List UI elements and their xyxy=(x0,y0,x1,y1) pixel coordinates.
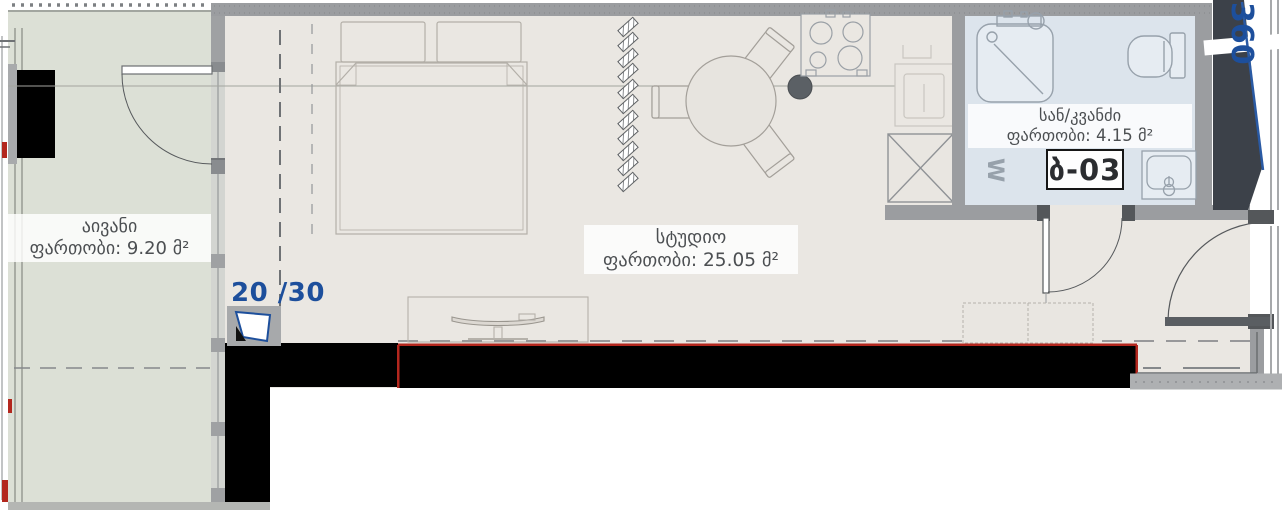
kitchen-sink xyxy=(895,64,953,126)
studio-area: ფართობი: 25.05 მ² xyxy=(584,250,798,273)
bathroom-label: სან/კვანძი ფართობი: 4.15 მ² xyxy=(968,104,1192,148)
duct-shaft xyxy=(888,134,953,202)
pillow xyxy=(437,22,521,62)
window-symbol xyxy=(227,306,281,346)
bathroom-name: სან/კვანძი xyxy=(968,106,1192,126)
unit-number-badge[interactable]: ბ-03 xyxy=(1046,149,1124,190)
axis-number-label: 360 xyxy=(1224,2,1259,65)
balcony-area: ფართობი: 9.20 მ² xyxy=(8,238,211,260)
balcony-bottom-band xyxy=(8,502,270,510)
washing-machine-symbol: W xyxy=(982,158,1007,182)
column xyxy=(788,75,812,99)
balcony-name: აივანი xyxy=(8,216,211,238)
left-wall-column xyxy=(17,70,55,158)
studio-name: სტუდიო xyxy=(584,227,798,250)
floor-plan: W xyxy=(0,0,1282,510)
top-wall xyxy=(211,3,1212,16)
pillow xyxy=(341,22,425,62)
bathroom-area: ფართობი: 4.15 მ² xyxy=(968,126,1192,146)
stove xyxy=(801,10,870,76)
bathroom-sink xyxy=(1142,151,1196,199)
window-ratio-label: 20 /30 xyxy=(231,278,325,308)
balcony-window-wall xyxy=(211,16,225,503)
balcony-label: აივანი ფართობი: 9.20 მ² xyxy=(8,214,211,262)
kitchen-bathroom-wall xyxy=(952,16,965,206)
shower xyxy=(977,11,1053,102)
left-wall-column-gray xyxy=(8,64,17,164)
unit-number-text: ბ-03 xyxy=(1049,153,1122,187)
black-walls xyxy=(225,343,1138,505)
studio-label: სტუდიო ფართობი: 25.05 მ² xyxy=(584,225,798,274)
toilet xyxy=(1128,33,1185,78)
table xyxy=(686,56,776,146)
wardrobe xyxy=(963,303,1093,343)
